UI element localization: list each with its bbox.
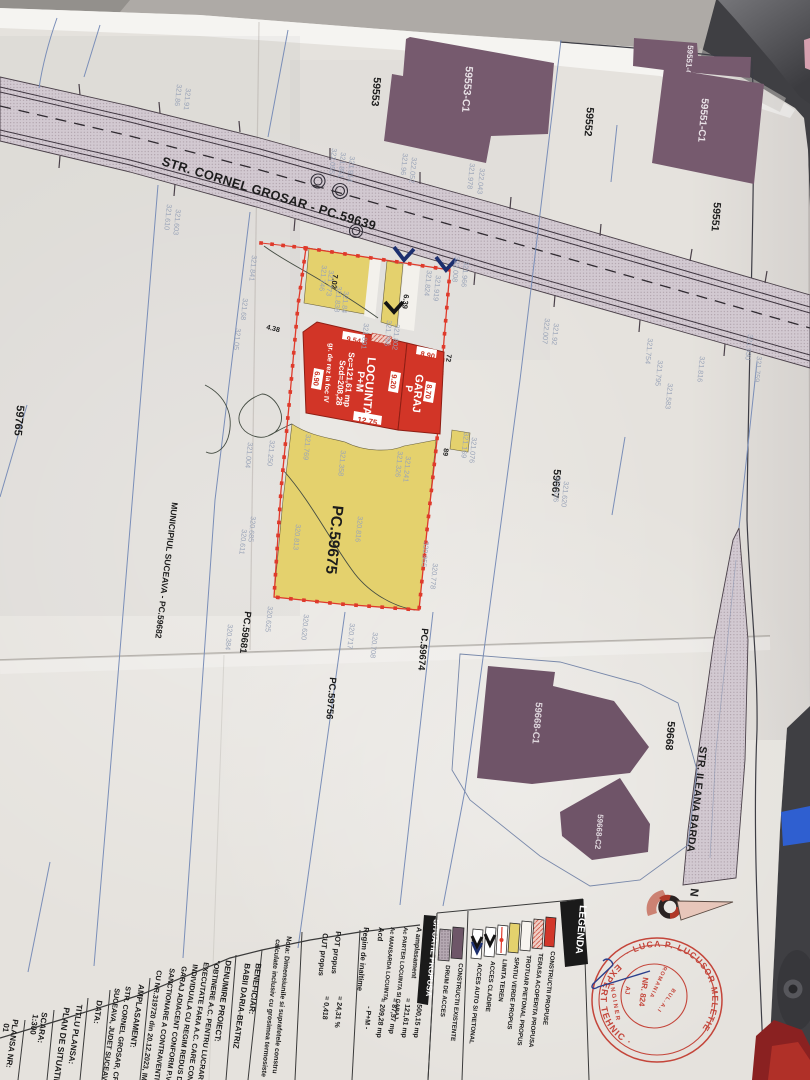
svg-text:N: N [687, 888, 700, 898]
svg-text:6.90: 6.90 [311, 371, 322, 387]
svg-text:59553: 59553 [368, 77, 383, 107]
svg-text:72: 72 [444, 354, 452, 363]
svg-text:P: P [402, 385, 414, 393]
svg-text:9.20: 9.20 [388, 374, 399, 390]
svg-text:8.70: 8.70 [423, 384, 434, 400]
svg-text:89: 89 [441, 448, 449, 457]
svg-text:01: 01 [1, 1023, 11, 1034]
svg-text:59668: 59668 [662, 721, 677, 751]
svg-text:59552: 59552 [581, 107, 596, 137]
svg-text:AJ: AJ [623, 986, 631, 995]
svg-text:59551: 59551 [708, 202, 723, 232]
svg-text:Acd: Acd [375, 927, 385, 942]
